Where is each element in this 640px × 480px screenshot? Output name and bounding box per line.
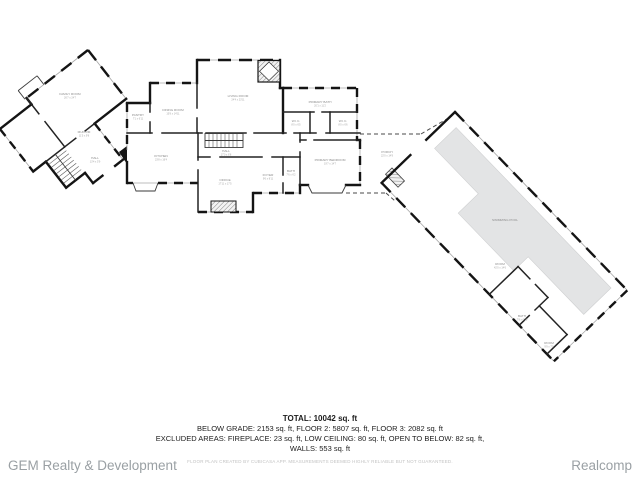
room-label: DINING ROOM <box>162 108 184 112</box>
room-dims: 42'0 x 14'6 <box>494 266 507 269</box>
room-dims: 19'7 x 14'7 <box>324 162 337 165</box>
room-dims: 7'1 x 6'11 <box>133 117 144 120</box>
swimming-pool <box>414 128 611 329</box>
left-wing-interior-walls <box>8 75 95 162</box>
room-label: W.I.C. <box>339 119 348 123</box>
main-house-windows <box>127 60 360 212</box>
room-dims: 15'8 x 14'11 <box>166 112 180 115</box>
room-dims: 11'5 x 9'8 <box>79 134 90 137</box>
main-stairs <box>205 134 243 148</box>
room-dims: 9'6 x 8'11 <box>263 177 274 180</box>
room-label: HALL <box>222 149 230 153</box>
total-area: TOTAL: 10042 sq. ft <box>0 414 640 424</box>
room-label: BATH <box>518 314 526 318</box>
left-wing-stairs <box>47 147 85 187</box>
room-label: LIVING ROOM <box>228 94 249 98</box>
room-dims: 26'7 x 24'7 <box>64 96 77 99</box>
room-label: PORCH <box>381 150 392 154</box>
room-dims: 23'8 x 16'4 <box>155 158 168 161</box>
room-dims: 9'9 x 7'0 <box>544 345 554 348</box>
room-label: W.I.C. <box>292 119 301 123</box>
main-house <box>127 60 360 212</box>
room-dims: 7'6 x 6'2 <box>286 173 296 176</box>
room-dims: 8'0 x 6'6 <box>338 123 348 126</box>
room-dims: 7'8 x 6'10 <box>517 318 528 321</box>
area-summary: TOTAL: 10042 sq. ft BELOW GRADE: 2153 sq… <box>0 414 640 454</box>
room-label: SWIMMING POOL <box>492 218 518 222</box>
room-label: OFFICE <box>219 178 230 182</box>
walls-area: WALLS: 553 sq. ft <box>0 444 640 454</box>
room-dims: 8'0 x 6'5 <box>291 123 301 126</box>
primary-bedroom-bay-window <box>308 185 346 193</box>
room-dims: 17'11 x 17'5 <box>218 182 232 185</box>
room-label: FAMILY ROOM <box>59 92 81 96</box>
realcomp-brand: Realcomp <box>571 458 632 473</box>
room-label: BATH <box>287 169 295 173</box>
excluded-areas: EXCLUDED AREAS: FIREPLACE: 23 sq. ft, LO… <box>0 434 640 444</box>
room-label: ROOM <box>495 262 505 266</box>
realty-brand: GEM Realty & Development <box>8 458 177 473</box>
room-dims: 24'4 x 23'11 <box>231 98 245 101</box>
floor-plan-drawing: FAMILY ROOM 26'7 x 24'7 MUD RM 11'5 x 9'… <box>0 0 640 480</box>
office-fireplace <box>211 201 236 212</box>
room-label: KITCHEN <box>154 154 168 158</box>
room-label: MUD RM <box>78 130 91 134</box>
room-dims: 13'4 x 5'9 <box>90 160 101 163</box>
room-label: PRIMARY BATH <box>309 100 332 104</box>
kitchen-bay-window <box>133 183 158 191</box>
room-label: HALL <box>91 156 99 160</box>
room-label: PANTRY <box>132 113 144 117</box>
floor-areas: BELOW GRADE: 2153 sq. ft, FLOOR 2: 5807 … <box>0 424 640 434</box>
room-dims: 22'0 x 14'9 <box>381 154 394 157</box>
room-dims: 20'1 x 11'2 <box>314 104 326 107</box>
room-label: FOYER <box>263 173 274 177</box>
room-dims: 17'0 x 6'8 <box>221 153 232 156</box>
living-room-fireplace <box>258 61 280 83</box>
room-label: PRIMARY BEDROOM <box>315 158 346 162</box>
room-label: ROOM <box>544 341 554 345</box>
floor-plan-page: FAMILY ROOM 26'7 x 24'7 MUD RM 11'5 x 9'… <box>0 0 640 480</box>
pool-wing <box>382 112 628 361</box>
